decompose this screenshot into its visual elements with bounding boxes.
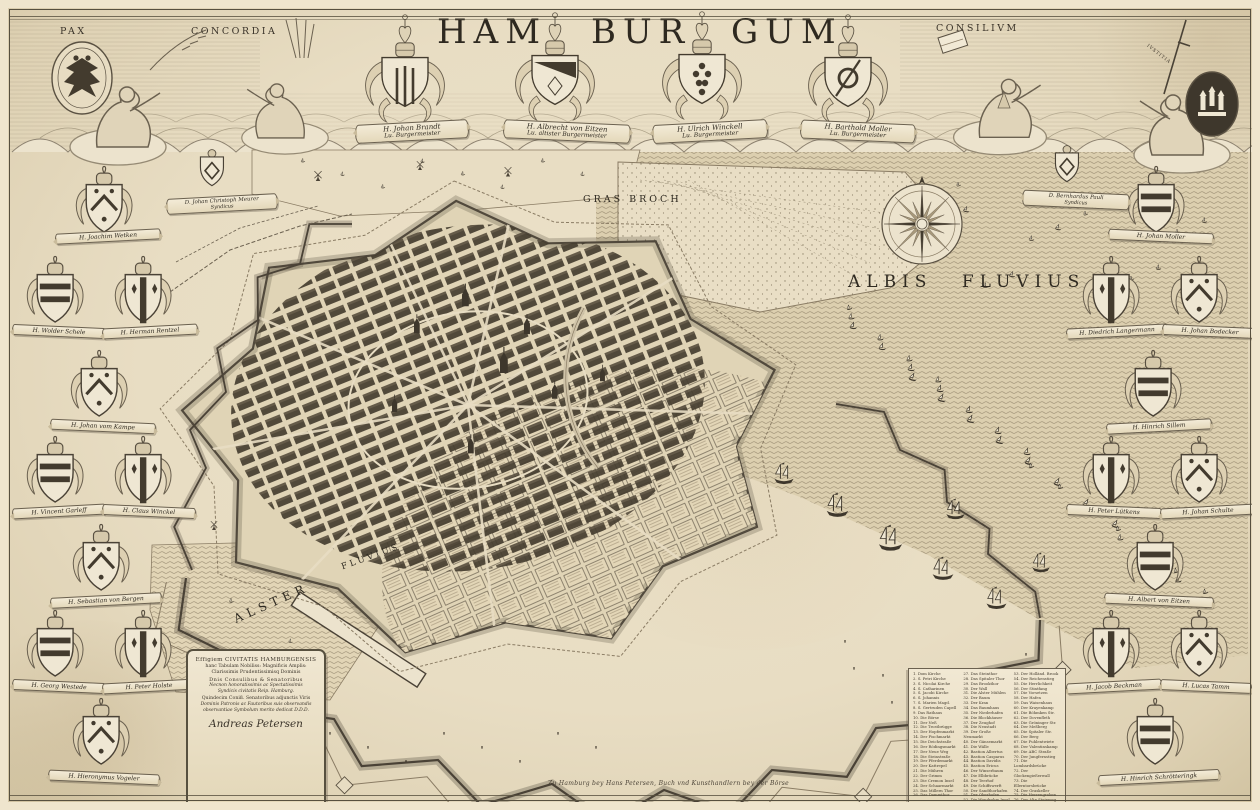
senator-coat-of-arms: [71, 350, 127, 416]
index-panel: 1. Dom Kirche 2. S. Petri Kirche 3. S. N…: [908, 668, 1066, 803]
title-part-3: GUM: [731, 12, 843, 52]
senator-coat-of-arms: [73, 698, 129, 764]
senator-coat-of-arms: [27, 436, 83, 502]
senator-coat-of-arms: [76, 166, 132, 232]
label-pax: PAX: [60, 26, 87, 37]
bottom-rule: [10, 795, 1250, 796]
senator-coat-of-arms: [27, 610, 83, 676]
label-gras-broch: GRAS BROCH: [583, 194, 682, 205]
label-albis-fluvius: ALBIS FLUVIUS: [848, 272, 1085, 292]
index-column-1: 1. Dom Kirche 2. S. Petri Kirche 3. S. N…: [913, 672, 960, 799]
engraver-signature: Andreas Petersen: [192, 718, 320, 732]
index-column-2: 27. Das Steinthor 28. Das Spitaler Thor …: [963, 672, 1010, 799]
label-concordia: CONCORDIA: [191, 26, 277, 37]
label-consilium: CONSILIVM: [936, 23, 1019, 34]
publisher-imprint: Zu Hamburg bey Hans Petersen, Buch vnd K…: [548, 780, 789, 787]
index-column-3: 53. Der Holländ. Brook 54. Der Reichenst…: [1014, 672, 1061, 799]
top-rule-2: [10, 19, 1250, 20]
senator-coat-of-arms: [73, 524, 129, 590]
syndic-crest-left: [200, 150, 223, 186]
dedication-cartouche: Effigiem CIVITATIS HAMBURGENSIS hanc Tab…: [186, 649, 326, 810]
top-rule: [10, 16, 1250, 17]
title-part-1: HAM: [437, 12, 547, 52]
senator-coat-of-arms: [115, 256, 171, 323]
senator-coat-of-arms: [27, 256, 83, 322]
title-part-2: BUR: [591, 12, 691, 52]
map-engraving: HAM BUR GUM PAX CONCORDIA CONSILIVM IVST…: [0, 0, 1260, 810]
senator-coat-of-arms: [1127, 698, 1183, 764]
senator-coat-of-arms: [115, 436, 171, 503]
